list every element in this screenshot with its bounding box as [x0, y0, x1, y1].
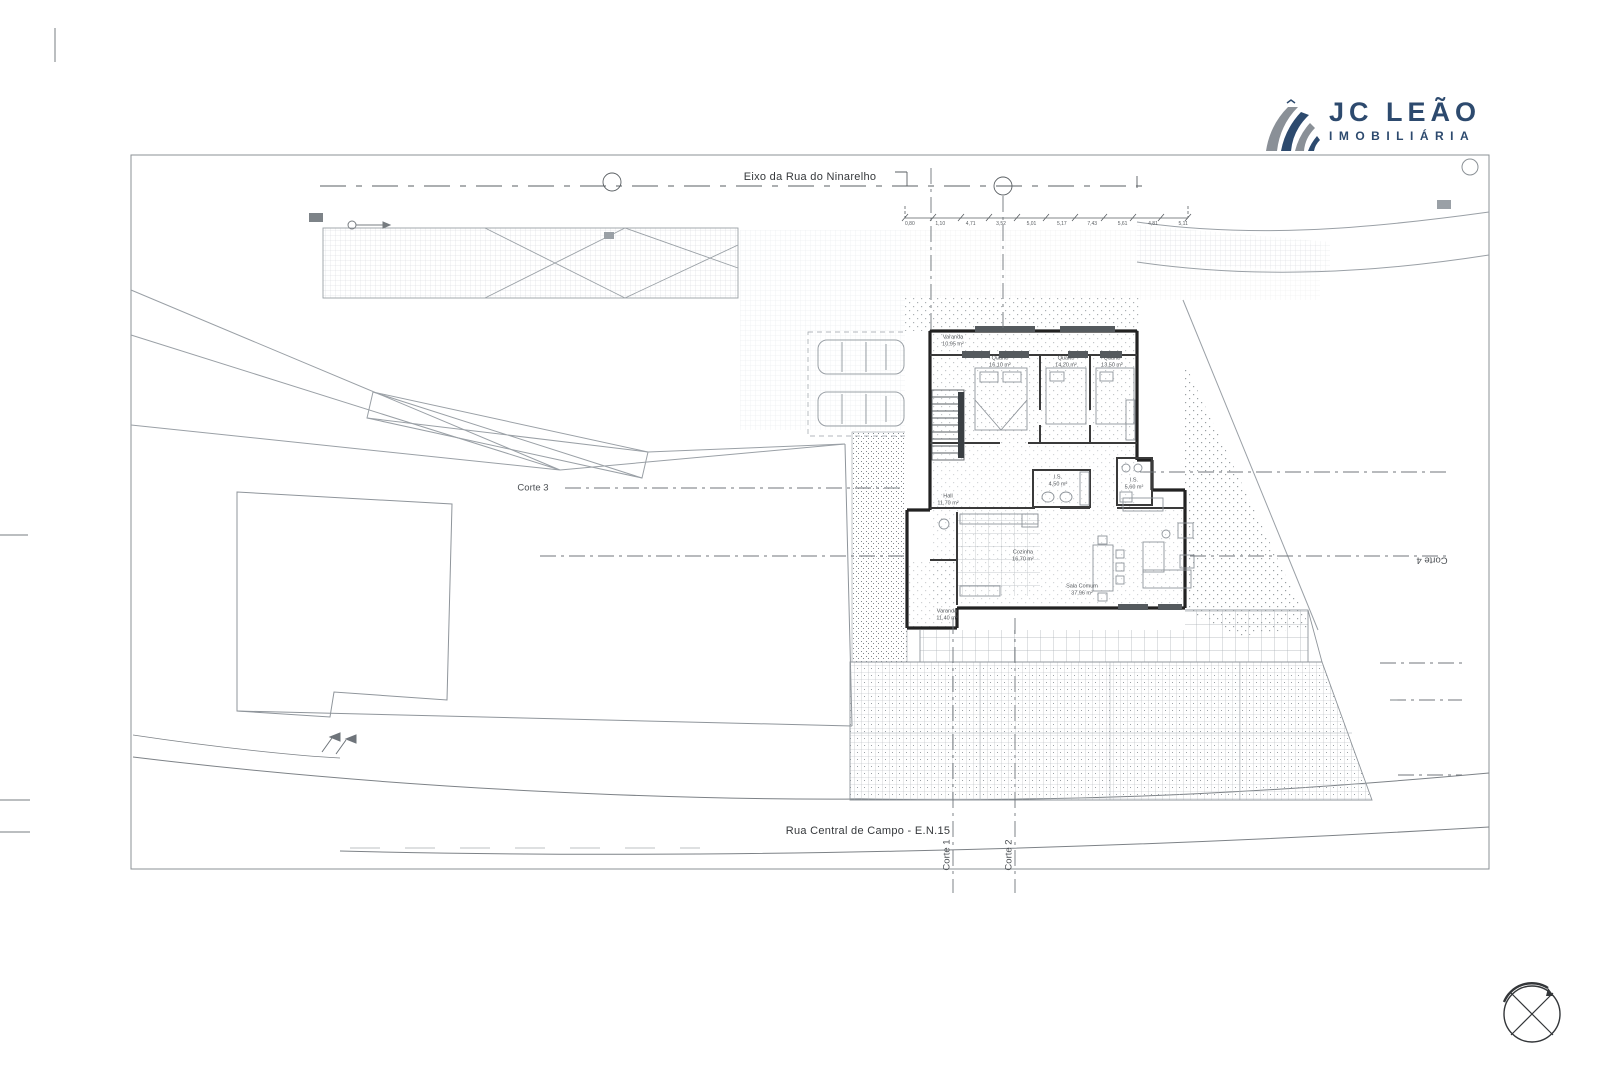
logo-subtitle: IMOBILIÁRIA [1329, 129, 1481, 143]
room-label-hall: Hall 11,70 m² [937, 493, 958, 506]
dimension-value: 7,43 [1087, 221, 1097, 227]
company-logo: JC LEÃO IMOBILIÁRIA [1262, 99, 1481, 155]
logo-text: JC LEÃO IMOBILIÁRIA [1329, 99, 1481, 143]
room-label-is-1: I.S. 4,50 m² [1049, 474, 1068, 487]
dimension-value: 4,81 [1148, 221, 1158, 227]
room-label-quarto-3: Quarto 13,50 m² [1101, 355, 1123, 368]
axis-line [320, 172, 1145, 195]
dimension-value: 3,52 [996, 221, 1006, 227]
section-label-corte-3: Corte 3 [517, 483, 548, 494]
logo-title: JC LEÃO [1329, 99, 1481, 126]
room-label-cozinha: Cozinha 16,70 m² [1012, 549, 1034, 562]
logo-swoosh-icon [1262, 99, 1320, 155]
section-label-corte-2: Corte 2 [1004, 839, 1015, 870]
compass-icon [1504, 983, 1560, 1042]
room-label-varanda-top: Varanda 10,95 m² [942, 334, 964, 347]
section-label-corte-4: Corte 4 [1416, 555, 1447, 566]
room-label-quarto-1: Quarto 16,10 m² [989, 355, 1011, 368]
dimension-value: 5,11 [1179, 221, 1188, 227]
dimension-chain [902, 206, 1191, 221]
room-label-is-2: I.S. 5,60 m² [1125, 477, 1144, 490]
site-plan-drawing [0, 0, 1619, 1080]
gate-symbol [322, 733, 356, 754]
room-label-varanda-bottom: Varanda 11,40 m² [936, 608, 957, 621]
dimension-value: 0,80 [905, 221, 915, 227]
dimension-value: 4,71 [966, 221, 976, 227]
room-label-quarto-2: Quarto 14,20 m² [1055, 355, 1077, 368]
dimension-value: 1,10 [935, 221, 945, 227]
dimension-value: 5,17 [1057, 221, 1067, 227]
section-label-corte-1: Corte 1 [942, 839, 953, 870]
street-label-bottom-road: Rua Central de Campo - E.N.15 [786, 825, 951, 837]
room-label-sala-comum: Sala Comum 37,96 m² [1066, 583, 1098, 596]
scanned-plan-sheet: Eixo da Rua do Ninarelho Rua Central de … [0, 0, 1619, 1080]
site-boundary-lines [131, 290, 845, 478]
street-label-top-axis: Eixo da Rua do Ninarelho [744, 171, 877, 183]
terrace-paving [850, 610, 1372, 800]
margin-ticks [0, 28, 55, 832]
parking-strip [309, 213, 738, 298]
dimension-value: 5,61 [1118, 221, 1128, 227]
dimension-values: 0,80 1,10 4,71 3,52 5,01 5,17 7,43 5,61 … [905, 221, 1188, 227]
dimension-value: 5,01 [1027, 221, 1037, 227]
